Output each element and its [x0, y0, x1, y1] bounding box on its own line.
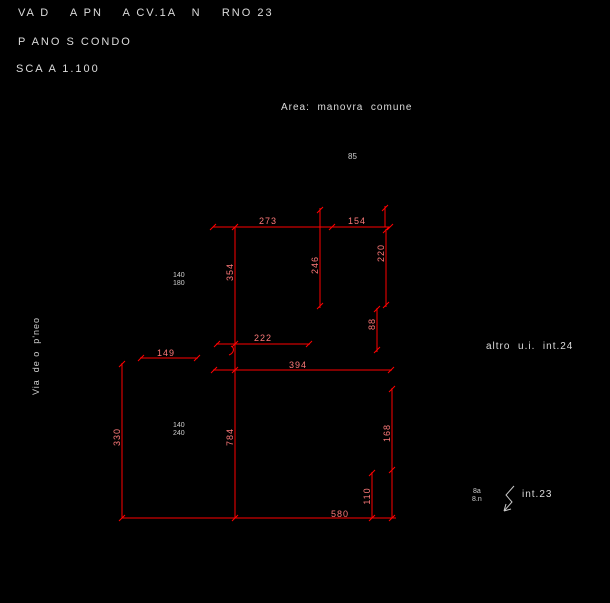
dim-label-784: 784: [225, 428, 235, 446]
scale-label: SCA A 1.100: [16, 63, 100, 75]
window-size-label-2: 140 240: [173, 422, 185, 438]
dim-label-top-left: 273: [259, 216, 277, 226]
entrance-arrow-icon: [504, 486, 514, 511]
entrance-tag: 8a 8.n: [472, 488, 482, 504]
dim-label-168: 168: [382, 424, 392, 442]
dim-label-bottom-total: 580: [331, 509, 349, 519]
dim-label-top-right: 154: [348, 216, 366, 226]
entrance-unit-label: int.23: [522, 489, 552, 500]
dim-label-354: 354: [225, 263, 235, 281]
dim-label-220: 220: [376, 244, 386, 262]
floor-title: P ANO S CONDO: [18, 36, 132, 48]
address-title: VA D A PN A CV.1A N RNO 23: [18, 7, 274, 19]
adjacent-unit-label: altro u.i. int.24: [486, 341, 573, 352]
window2-width: 140: [173, 422, 185, 430]
floorplan-linework: [0, 0, 610, 603]
room-number-label: 85: [348, 153, 357, 161]
entrance-tag-top: 8a: [472, 488, 482, 496]
common-area-note: Area: manovra comune: [281, 102, 413, 113]
dimension-lines: [122, 206, 396, 518]
dim-label-110: 110: [362, 487, 372, 504]
dim-label-394: 394: [289, 360, 307, 370]
window-size-label-1: 140 180: [173, 272, 185, 288]
door-swing-symbol: [229, 346, 233, 355]
dim-label-149: 149: [157, 348, 175, 358]
dim-label-88: 88: [367, 318, 377, 330]
dim-label-222: 222: [254, 333, 272, 343]
window1-width: 140: [173, 272, 185, 280]
street-name-label: Via de o p'neo: [31, 317, 41, 395]
dim-label-330: 330: [112, 428, 122, 446]
window1-height: 180: [173, 280, 185, 288]
window2-height: 240: [173, 430, 185, 438]
dim-label-246: 246: [310, 256, 320, 274]
floorplan-canvas: VA D A PN A CV.1A N RNO 23 P ANO S CONDO…: [0, 0, 610, 603]
dimension-ticks: [119, 205, 395, 521]
entrance-tag-bottom: 8.n: [472, 496, 482, 504]
